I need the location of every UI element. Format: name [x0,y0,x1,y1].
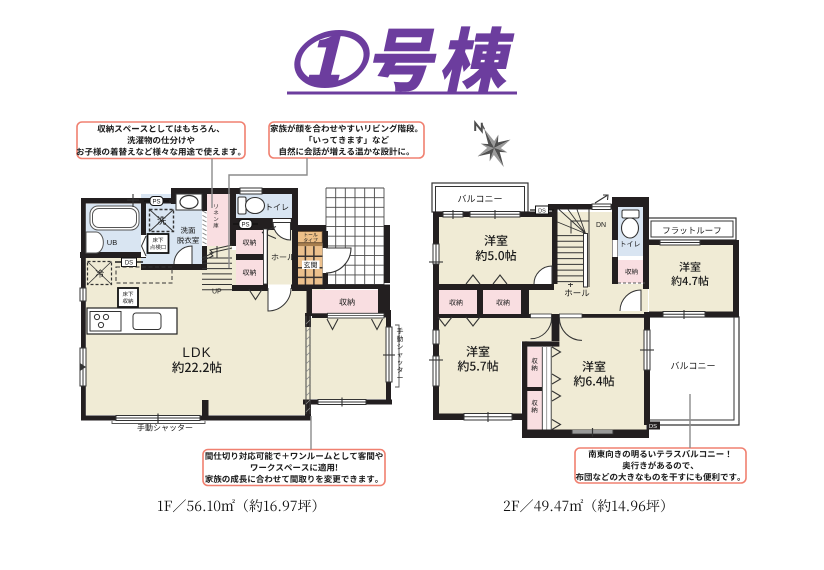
svg-text:LDK: LDK [182,345,211,360]
svg-text:DS: DS [538,208,546,214]
svg-text:UP: UP [212,289,222,296]
svg-text:DS: DS [125,261,133,267]
svg-text:UB: UB [107,238,117,247]
svg-text:DS: DS [649,424,657,430]
svg-text:PS: PS [241,223,249,229]
svg-text:DN: DN [596,222,606,229]
svg-text:PS: PS [152,200,160,206]
